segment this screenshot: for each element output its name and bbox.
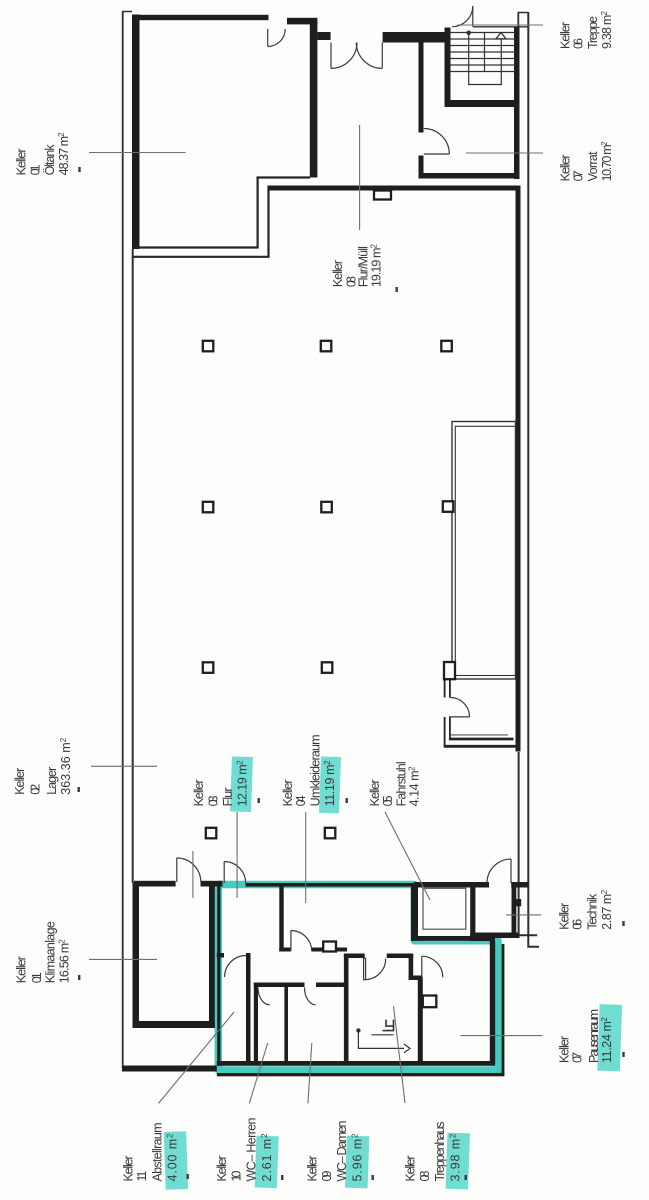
svg-text:WC– Damen: WC– Damen [335,1120,349,1181]
svg-text:Treppenhaus: Treppenhaus [433,1122,447,1182]
svg-text:363.36 m2: 363.36 m2 [59,737,73,795]
svg-text:Keller: Keller [558,903,572,930]
svg-text:Öltank: Öltank [43,144,57,176]
svg-text:5.96 m2: 5.96 m2 [351,1133,365,1182]
svg-text:08: 08 [418,1170,432,1181]
svg-text:Abstellraum: Abstellraum [150,1123,164,1182]
svg-text:Keller: Keller [15,148,29,175]
svg-text:12.19 m2: 12.19 m2 [235,760,249,807]
svg-text:11.24 m2: 11.24 m2 [600,1016,614,1063]
svg-text:05: 05 [381,795,395,806]
svg-text:Flur/Müll: Flur/Müll [357,246,371,287]
svg-text:2.87 m2: 2.87 m2 [600,889,614,930]
svg-text:07: 07 [571,1052,585,1063]
svg-text:03: 03 [207,795,221,806]
svg-text:Technik: Technik [586,893,600,930]
svg-text:02: 02 [28,784,42,795]
svg-text:Keller: Keller [331,260,345,287]
svg-text:48.37 m2: 48.37 m2 [57,132,71,176]
svg-text:Keller: Keller [306,1156,320,1182]
svg-text:Umkleideraum: Umkleideraum [309,734,323,806]
svg-text:11.19 m2: 11.19 m2 [323,760,337,807]
svg-text:06: 06 [572,38,586,49]
svg-text:Keller: Keller [404,1156,418,1182]
svg-text:Vorrat: Vorrat [586,151,600,182]
svg-text:16.56 m2: 16.56 m2 [58,939,72,984]
svg-text:Fahrstuhl: Fahrstuhl [395,761,409,806]
svg-text:3.98 m2: 3.98 m2 [449,1133,463,1182]
svg-text:4.14 m2: 4.14 m2 [408,766,422,807]
svg-text:Keller: Keller [559,154,573,181]
svg-text:WC– Herren: WC– Herren [245,1117,259,1181]
svg-text:Flur: Flur [221,787,235,806]
svg-text:Keller: Keller [13,768,27,795]
svg-text:01: 01 [30,972,44,983]
svg-text:Keller: Keller [192,779,206,806]
svg-text:07: 07 [572,170,586,181]
svg-text:11: 11 [135,1170,149,1181]
svg-text:Keller: Keller [215,1156,229,1182]
svg-text:Keller: Keller [14,956,28,983]
svg-text:06: 06 [571,919,585,930]
svg-text:01: 01 [29,164,43,175]
svg-text:2.61 m2: 2.61 m2 [260,1133,274,1182]
svg-text:19.19 m2: 19.19 m2 [370,244,384,288]
svg-text:Keller: Keller [558,1036,572,1063]
svg-text:Keller: Keller [559,22,573,49]
svg-text:Treppe: Treppe [586,16,600,49]
svg-text:04: 04 [294,795,308,806]
svg-text:Pausenraum: Pausenraum [587,1009,601,1063]
svg-text:Keller: Keller [368,779,382,806]
svg-text:Lager: Lager [45,767,59,795]
svg-text:9.38 m2: 9.38 m2 [600,10,614,49]
svg-text:4.00 m2: 4.00 m2 [165,1133,179,1182]
svg-text:10: 10 [230,1170,244,1181]
svg-text:09: 09 [320,1170,334,1181]
svg-text:10.70 m2: 10.70 m2 [600,141,614,182]
svg-text:Klimaanlage: Klimaanlage [44,921,58,983]
svg-text:Keller: Keller [121,1156,135,1182]
svg-text:Keller: Keller [281,779,295,806]
